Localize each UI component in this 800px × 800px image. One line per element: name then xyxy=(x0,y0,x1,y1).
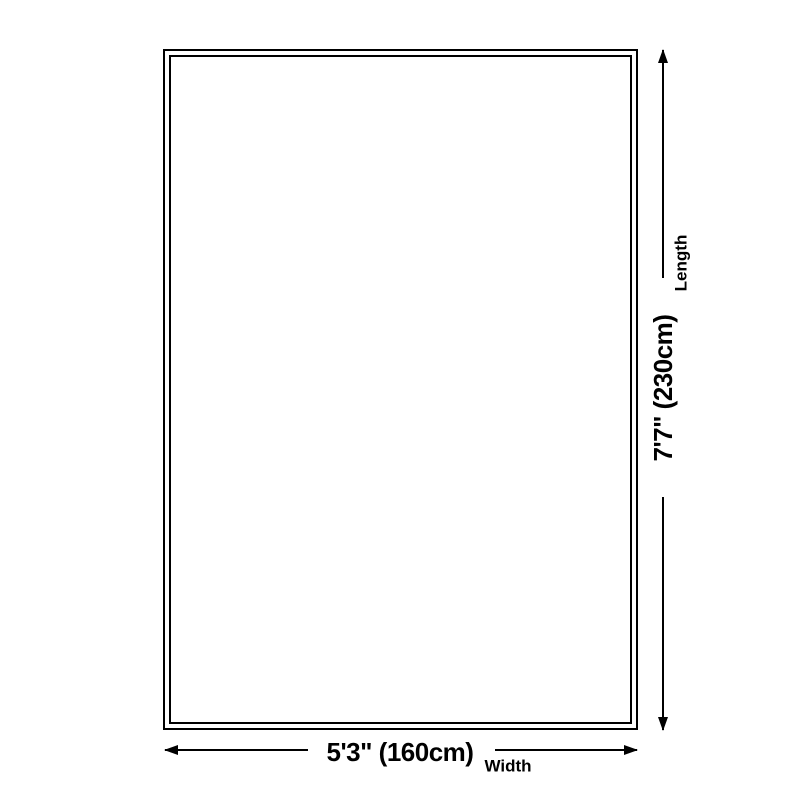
arrow-right-icon xyxy=(624,745,638,755)
dimension-diagram: 7'7" (230cm) Length 5'3" (160cm) Width xyxy=(0,0,800,800)
width-label: Width xyxy=(484,758,531,775)
arrow-down-icon xyxy=(658,717,668,731)
length-dimension-line-top xyxy=(662,50,664,278)
width-dimension-line-right xyxy=(495,749,637,751)
width-dimension-line-left xyxy=(165,749,308,751)
length-dimension-line-bottom xyxy=(662,497,664,730)
item-outline-inner xyxy=(169,55,632,724)
length-label: Length xyxy=(673,235,690,292)
width-value: 5'3" (160cm) xyxy=(327,739,474,765)
length-value: 7'7" (230cm) xyxy=(650,315,676,462)
item-outline-outer xyxy=(163,49,638,730)
